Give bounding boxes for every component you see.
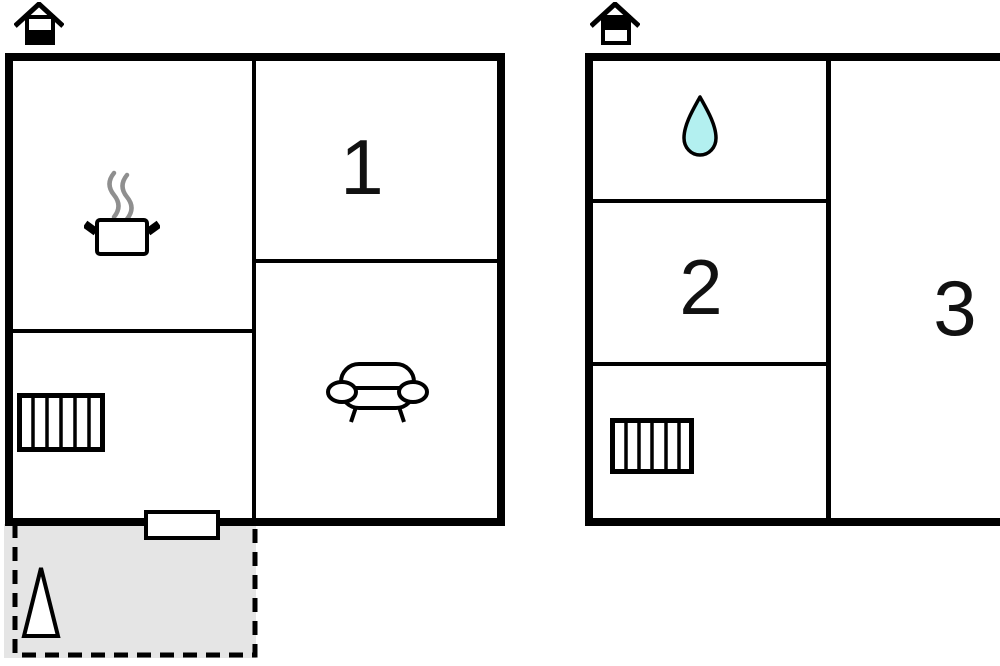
room-1-label: 1 [340, 128, 383, 206]
house-upper-floor-icon [590, 2, 640, 46]
sofa-icon [325, 358, 430, 424]
wall-room2-landing [593, 362, 826, 366]
wall-vertical-left-plan [252, 61, 256, 518]
cooking-pot-icon [84, 170, 160, 258]
stairs-icon-upper [610, 418, 694, 474]
wall-vertical-right-plan [826, 61, 831, 518]
wall-room1-livingroom [256, 259, 497, 263]
water-drop-icon [681, 94, 719, 158]
house-lower-floor-icon [14, 2, 64, 46]
room-3-label: 3 [933, 269, 976, 347]
entrance-door [144, 510, 220, 540]
stairs-icon [17, 393, 105, 452]
wall-kitchen-hall [13, 329, 252, 333]
tree-icon [21, 564, 61, 640]
room-2-label: 2 [679, 248, 722, 326]
wall-bathroom-room2 [593, 199, 826, 203]
floor-plan-page: 1 [0, 0, 1000, 666]
